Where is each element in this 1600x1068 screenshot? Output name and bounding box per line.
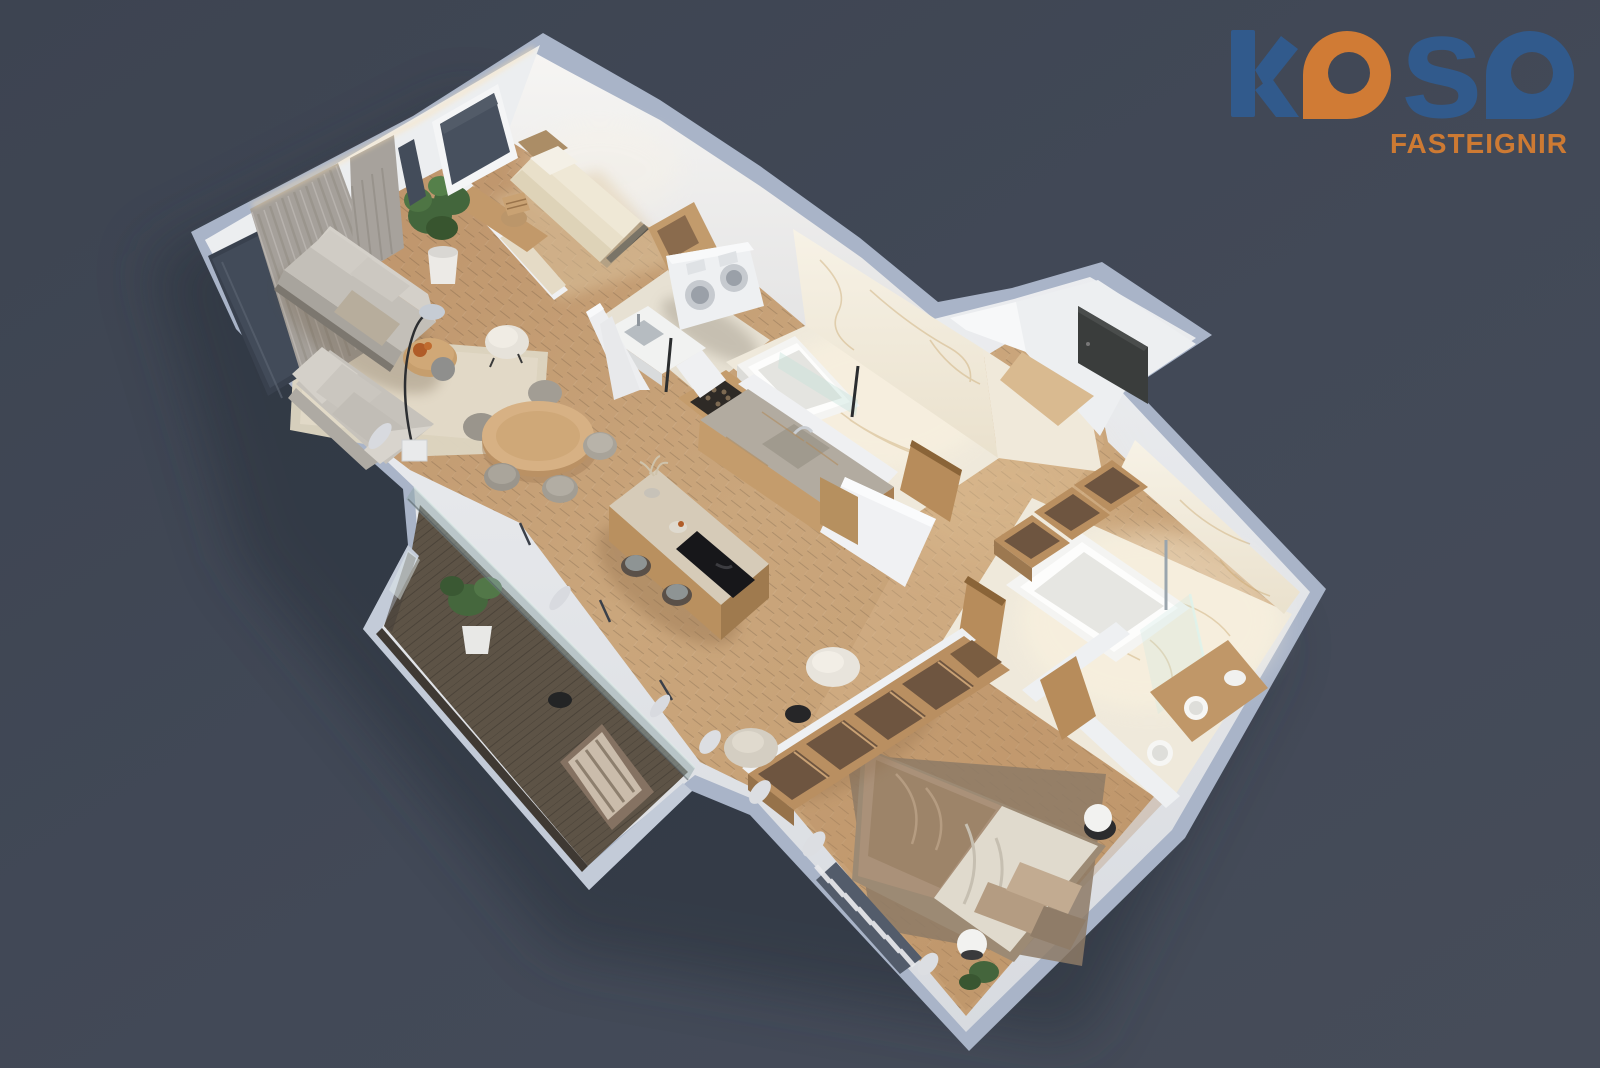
svg-text:s: s bbox=[1400, 0, 1483, 149]
svg-text:FASTEIGNIR: FASTEIGNIR bbox=[1390, 128, 1568, 159]
